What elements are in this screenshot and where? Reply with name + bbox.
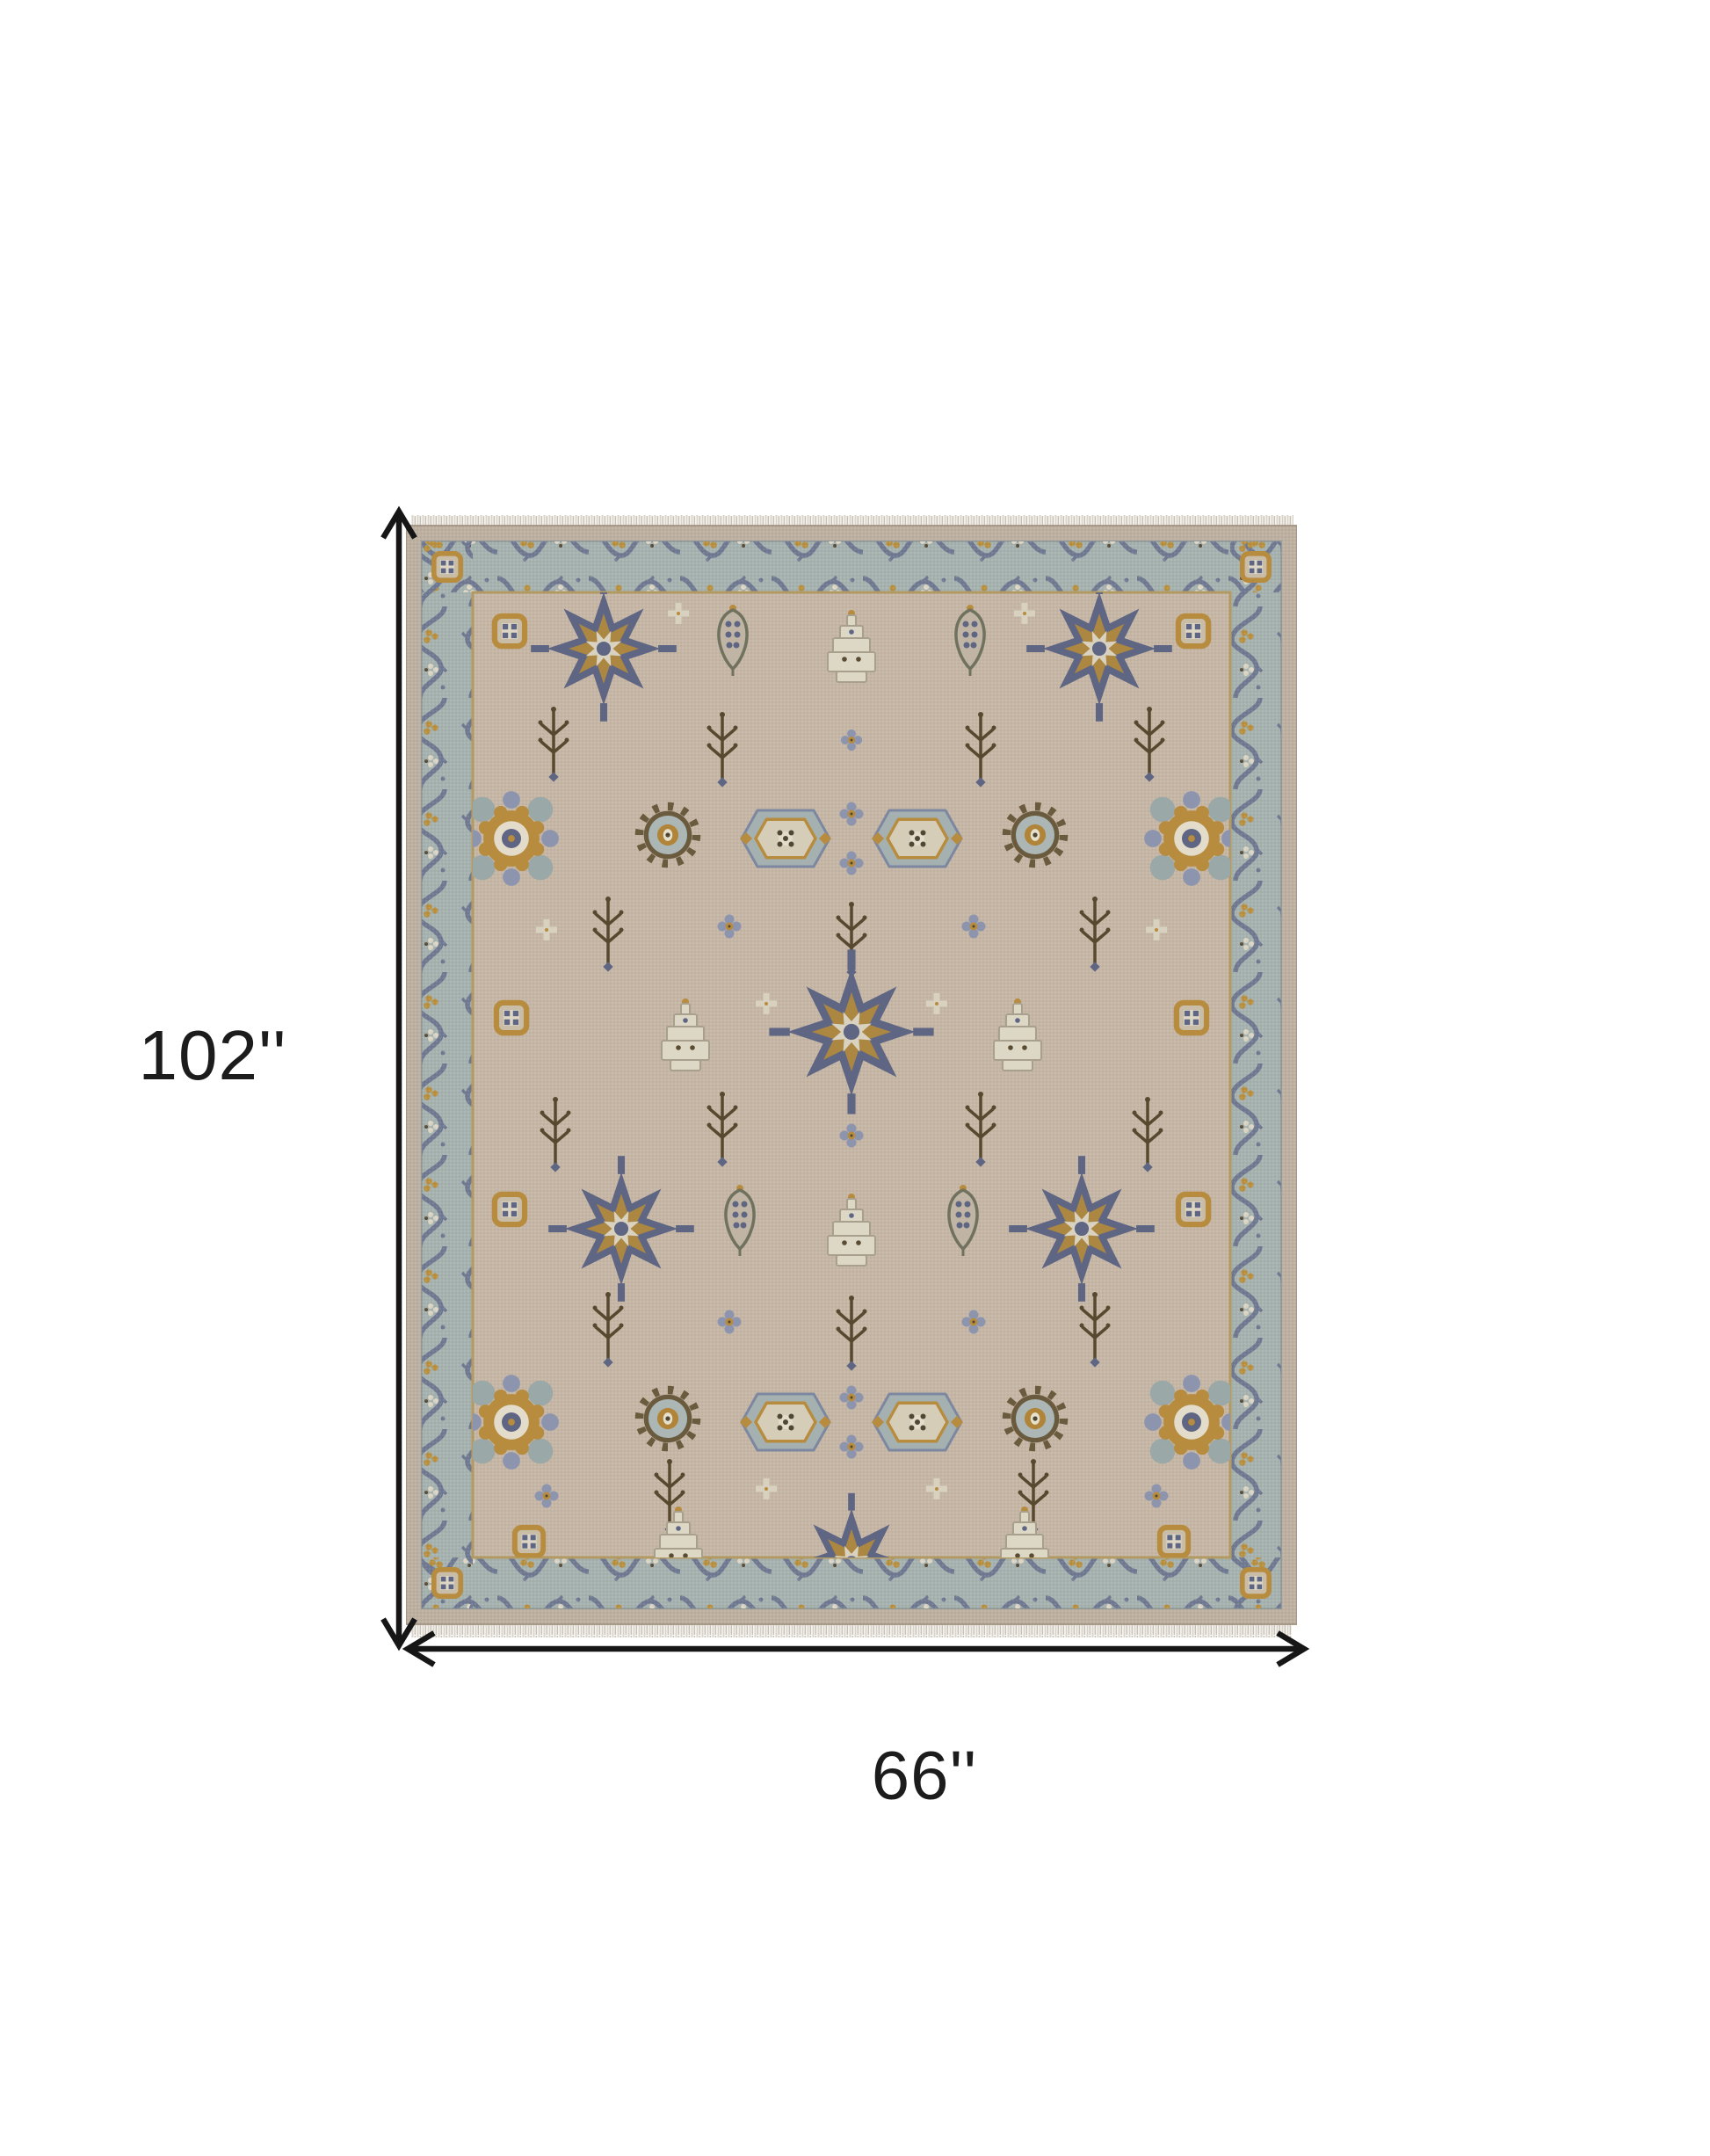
- rug-svg: [406, 515, 1297, 1638]
- rug-fringe-bottom: [411, 1625, 1292, 1637]
- product-dimension-figure: 102'' 66'': [0, 0, 1710, 2156]
- width-dimension-label: 66'': [872, 1736, 978, 1816]
- rug-image: [406, 515, 1297, 1638]
- height-dimension-label: 102'': [138, 1015, 286, 1096]
